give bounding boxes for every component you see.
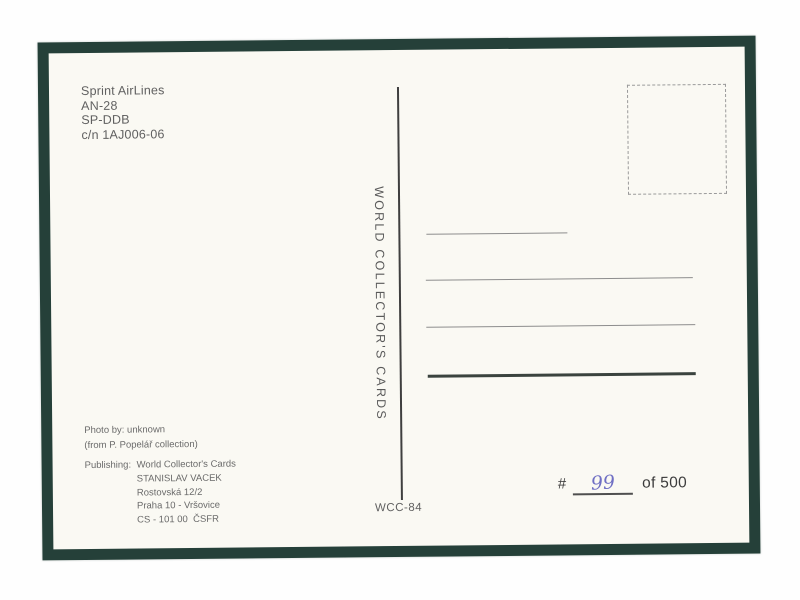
publisher-postal: CS - 101 00 ČSFR [85, 513, 236, 528]
airline-name: Sprint AirLines [81, 83, 165, 98]
registration: SP-DDB [81, 112, 165, 127]
publisher-name: World Collector's Cards [137, 458, 236, 473]
limited-edition-numbering: # 99 of 500 [558, 471, 687, 495]
publishing-block: Publishing: World Collector's Cards STAN… [85, 458, 237, 528]
address-line-2 [426, 277, 693, 281]
hash-sign: # [558, 475, 567, 492]
subject-info-block: Sprint AirLines AN-28 SP-DDB c/n 1AJ006-… [81, 83, 165, 142]
stamp-box [627, 84, 727, 195]
publisher-street: Rostovská 12/2 [85, 485, 236, 500]
aircraft-type: AN-28 [81, 98, 165, 113]
publisher-city: Praha 10 - Vršovice [85, 499, 236, 514]
scan-background: Sprint AirLines AN-28 SP-DDB c/n 1AJ006-… [0, 0, 800, 600]
handwritten-number: 99 [590, 472, 615, 493]
address-line-3 [426, 324, 695, 328]
address-line-1 [426, 232, 567, 234]
postcard-back: Sprint AirLines AN-28 SP-DDB c/n 1AJ006-… [38, 36, 761, 561]
publishing-label: Publishing: [85, 459, 137, 473]
construction-number: c/n 1AJ006-06 [81, 127, 165, 142]
card-code: WCC-84 [375, 502, 422, 514]
brand-vertical-text: WORLD COLLECTOR'S CARDS [372, 186, 388, 421]
address-line-4 [428, 372, 696, 378]
photo-by-line: Photo by: unknown [84, 423, 197, 439]
number-blank-line: 99 [573, 472, 633, 496]
collection-line: (from P. Popelář collection) [84, 437, 197, 453]
center-divider-line [397, 87, 403, 500]
photo-credit-block: Photo by: unknown (from P. Popelář colle… [84, 423, 198, 453]
of-total-label: of 500 [642, 474, 687, 492]
publisher-person: STANISLAV VACEK [85, 471, 236, 486]
